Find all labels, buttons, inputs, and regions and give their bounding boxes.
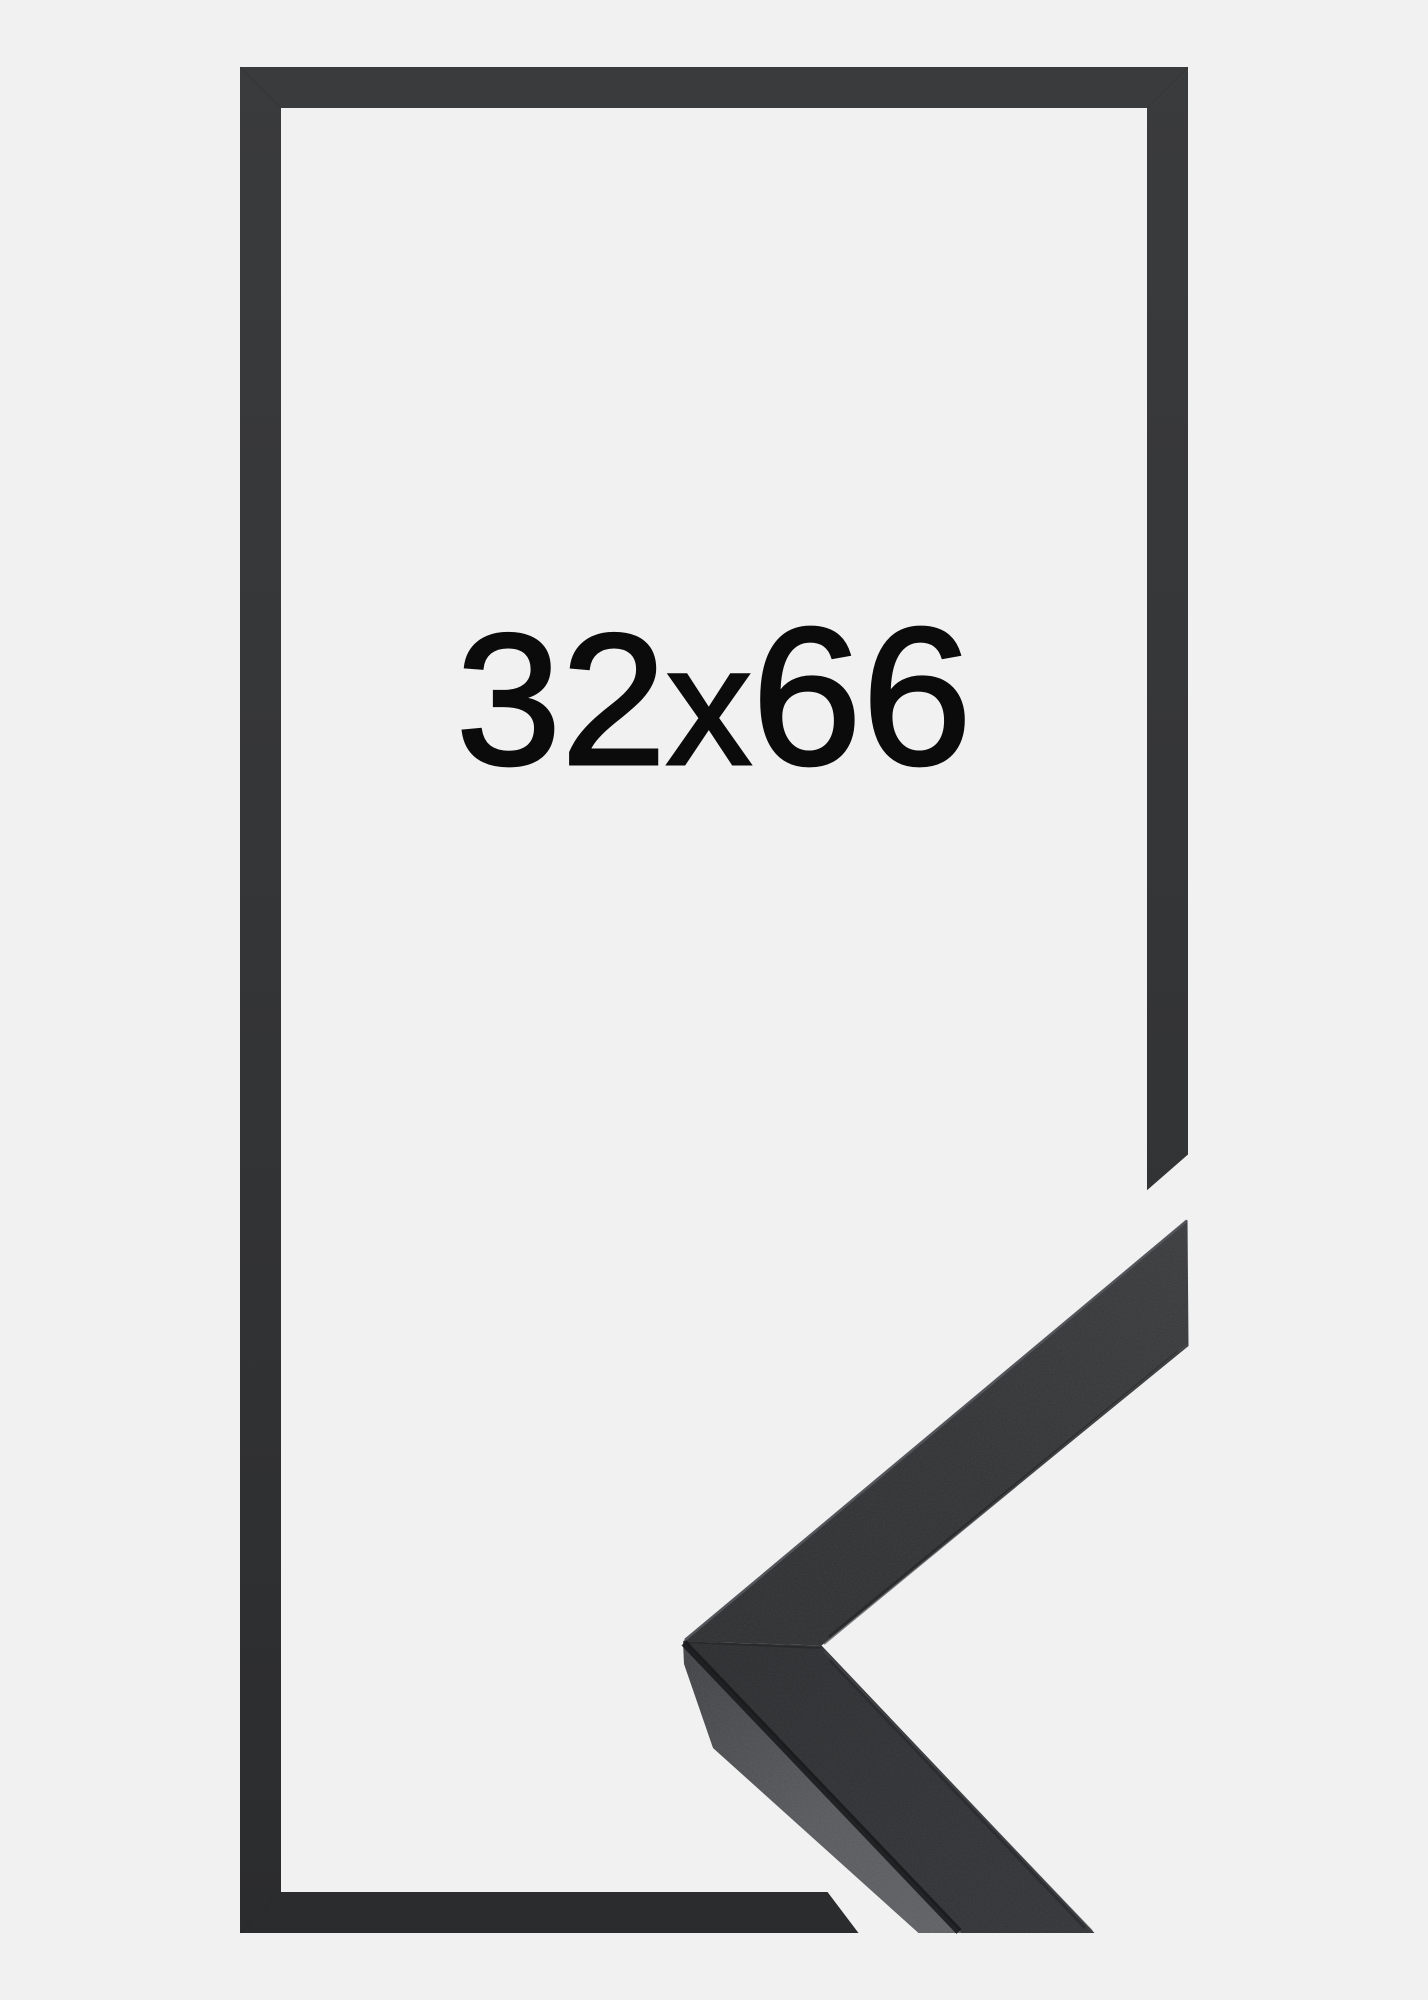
svg-text:32x66: 32x66	[456, 587, 972, 806]
